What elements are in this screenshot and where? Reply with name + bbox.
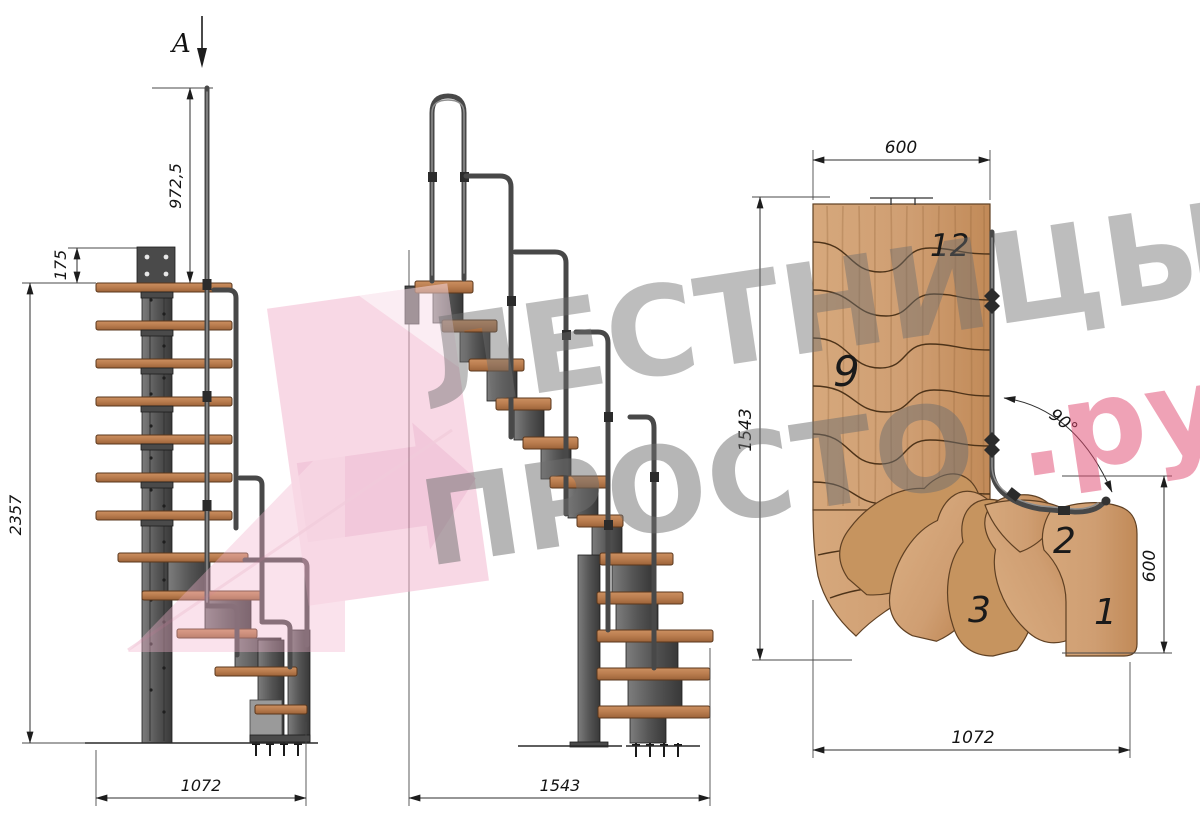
dim-label-total-height: 2357 — [6, 494, 25, 536]
step-number-1: 1 — [1094, 592, 1117, 633]
dim-total-height: 2357 — [6, 283, 95, 743]
dim-label-plan-entry-width: 600 — [1140, 550, 1160, 582]
watermark-suffix: .ру — [1006, 337, 1200, 504]
dim-label-top-offset: 175 — [51, 250, 70, 281]
step-number-2: 2 — [1053, 521, 1076, 562]
front-anchor-bolts — [632, 743, 682, 757]
dim-plan-top-width: 600 — [813, 138, 990, 200]
step-number-3: 3 — [968, 590, 991, 631]
section-arrow-icon — [197, 16, 207, 68]
dim-label-front-width: 1543 — [540, 776, 581, 795]
drawing-canvas: A 972,5 175 2357 — [0, 0, 1200, 832]
section-label: A — [170, 29, 191, 59]
side-elevation-view: A 972,5 175 2357 — [6, 16, 318, 806]
dim-top-offset: 175 — [51, 248, 137, 283]
dim-label-plan-top-width: 600 — [885, 138, 917, 158]
dim-label-plan-bottom-width: 1072 — [951, 728, 994, 748]
dim-label-depth: 1072 — [181, 776, 222, 795]
dim-label-rail-height: 972,5 — [166, 163, 185, 209]
anchor-bolts — [252, 742, 302, 756]
staircase-technical-drawing: A 972,5 175 2357 — [0, 0, 1200, 832]
